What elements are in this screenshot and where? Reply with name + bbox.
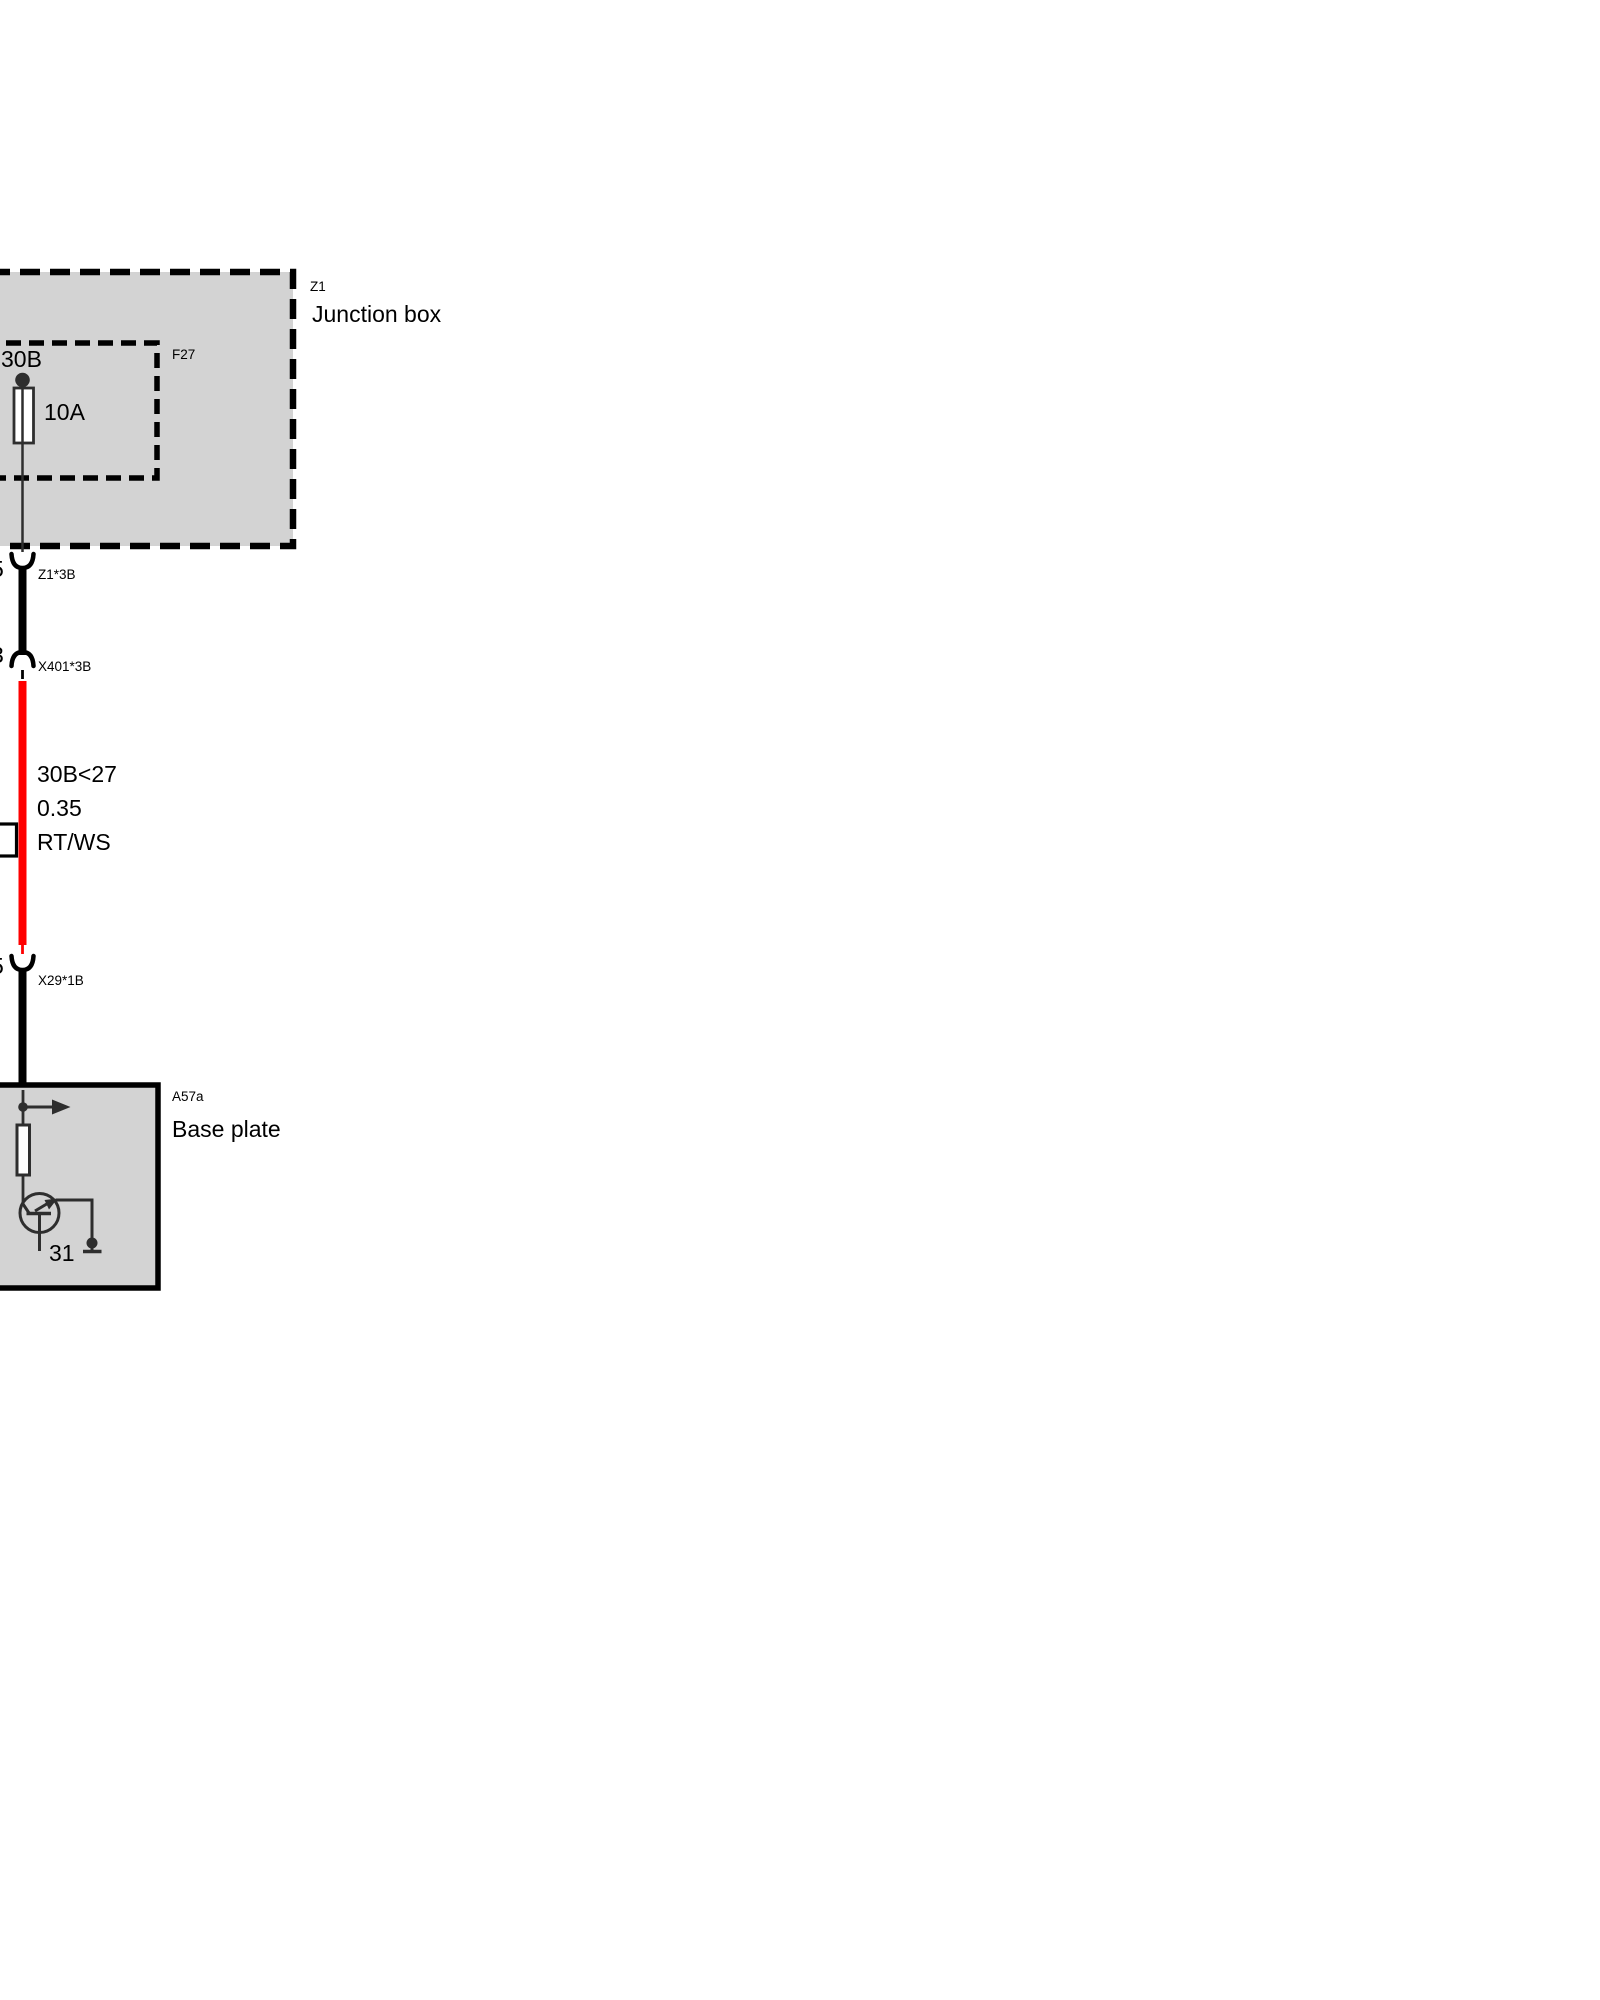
connector-socket-icon: [12, 554, 34, 568]
ground-terminal-label: 31: [49, 1240, 75, 1266]
base-plate: A57a Base plate: [0, 1085, 281, 1288]
wiring-diagram-page: Z1 Junction box F27 30B 10A 5 Z1*3B: [0, 0, 1600, 2000]
wire-circuit-label: 30B<27: [37, 761, 117, 787]
terminal-30b-label: 30B: [1, 346, 42, 372]
connector-code: X29*1B: [38, 973, 84, 988]
connector-pin-number: 5: [0, 556, 4, 582]
wire-red-rt-ws: 30B<27 0.35 RT/WS: [0, 681, 117, 945]
fuse-code: F27: [172, 347, 195, 362]
base-plate-label: Base plate: [172, 1116, 281, 1142]
connector-x29-1b: 5 X29*1B: [0, 945, 84, 988]
resistor-symbol: [17, 1125, 30, 1175]
connector-code: X401*3B: [38, 659, 91, 674]
connector-pin-number: 3: [0, 642, 4, 668]
base-plate-code: A57a: [172, 1089, 204, 1104]
wire-color-code-label: RT/WS: [37, 829, 111, 855]
fuse-rating: 10A: [44, 399, 86, 425]
connector-code: Z1*3B: [38, 567, 76, 582]
wiring-diagram: Z1 Junction box F27 30B 10A 5 Z1*3B: [0, 0, 1600, 2000]
option-code-box-partial: [0, 824, 17, 856]
terminal-30b-dot: [15, 373, 30, 388]
junction-dot: [18, 1102, 28, 1112]
junction-box-code: Z1: [310, 279, 326, 294]
connector-socket-icon: [12, 956, 34, 970]
wire-cross-section-label: 0.35: [37, 795, 82, 821]
connector-x401-3b: 3 X401*3B: [0, 642, 91, 679]
connector-pin-number: 5: [0, 953, 4, 979]
junction-box: Z1 Junction box F27 30B 10A: [0, 272, 442, 552]
junction-box-label: Junction box: [312, 301, 442, 327]
connector-socket-icon: [12, 652, 34, 666]
connector-z1-3b: 5 Z1*3B: [0, 554, 76, 582]
